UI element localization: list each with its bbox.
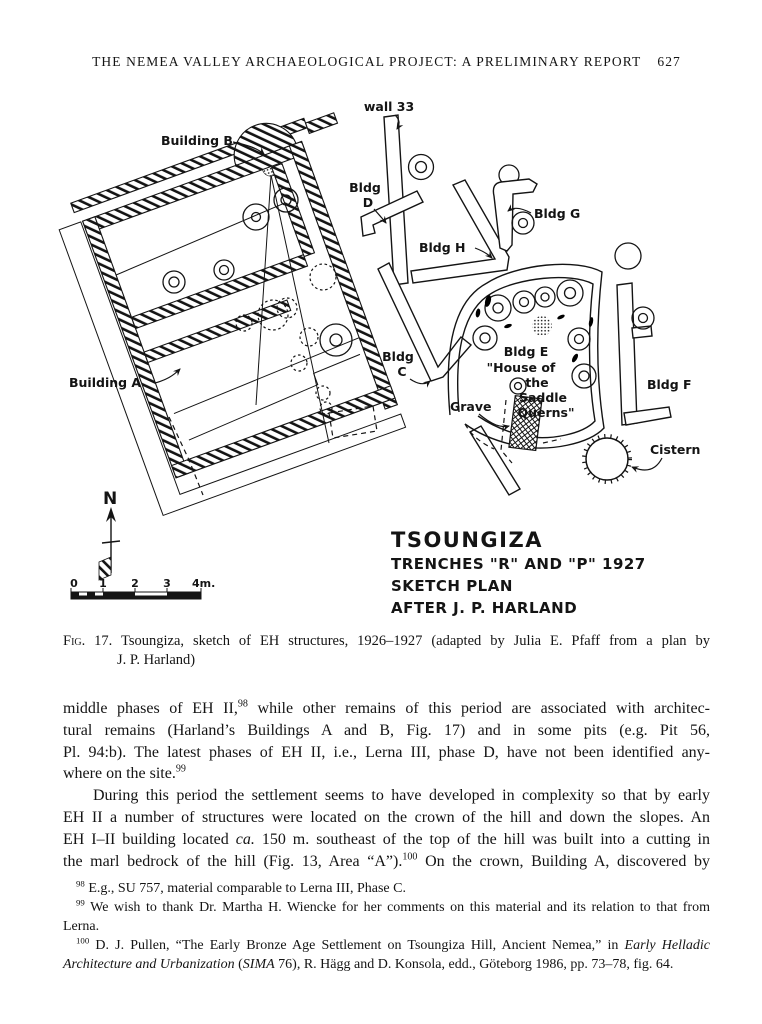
- label-bldg-d-2: D: [363, 195, 373, 210]
- label-bldg-f: Bldg F: [647, 377, 692, 392]
- running-head: THE NEMEA VALLEY ARCHAEOLOGICAL PROJECT:…: [63, 54, 710, 70]
- label-bldg-e-4: Saddle: [519, 390, 567, 405]
- footnote-99: 99 We wish to thank Dr. Martha H. Wienck…: [63, 898, 710, 936]
- paragraph-1: middle phases of EH II,98 while other re…: [63, 698, 710, 785]
- plan-title-line4: AFTER J. P. HARLAND: [391, 599, 577, 617]
- footnotes: 98 E.g., SU 757, material comparable to …: [63, 879, 710, 974]
- figure-caption: Fig. 17. Tsoungiza, sketch of EH structu…: [63, 632, 710, 670]
- body-text: middle phases of EH II,98 while other re…: [63, 698, 710, 872]
- plan-title-line1: TSOUNGIZA: [391, 528, 543, 552]
- pithos-circle: [409, 155, 434, 180]
- room-line: [181, 354, 367, 440]
- scale-bar: 0 1 2 3 4m.: [70, 577, 215, 599]
- label-bldg-e-5: Querns": [517, 405, 574, 420]
- stipple-pit: [532, 316, 552, 336]
- label-bldg-c-1: Bldg: [382, 349, 414, 364]
- label-cistern: Cistern: [650, 442, 700, 457]
- label-wall-33: wall 33: [364, 99, 414, 114]
- wall-spur: [306, 113, 338, 134]
- paragraph-2: During this period the settlement seems …: [63, 785, 710, 872]
- cistern: [584, 436, 630, 482]
- plan-title-block: TSOUNGIZA TRENCHES "R" AND "P" 1927 SKET…: [391, 528, 646, 617]
- plan-title-line2: TRENCHES "R" AND "P" 1927: [391, 555, 646, 573]
- north-arrow: N: [99, 489, 120, 580]
- figure-17-plan: Building B wall 33 Bldg D Bldg G Bldg H …: [51, 95, 711, 630]
- plan-title-line3: SKETCH PLAN: [391, 577, 513, 595]
- section-line: [256, 175, 271, 405]
- label-bldg-c-2: C: [397, 364, 406, 379]
- label-bldg-g: Bldg G: [534, 206, 580, 221]
- label-bldg-e-2: "House of: [487, 360, 556, 375]
- label-bldg-h: Bldg H: [419, 240, 466, 255]
- building-a-complex: [51, 99, 443, 516]
- pithos-circle: [512, 212, 534, 234]
- journal-page: THE NEMEA VALLEY ARCHAEOLOGICAL PROJECT:…: [0, 0, 762, 1024]
- label-bldg-d-1: Bldg: [349, 180, 381, 195]
- label-building-a: Building A: [69, 375, 141, 390]
- scale-4m: 4m.: [192, 577, 215, 590]
- footnote-100: 100 D. J. Pullen, “The Early Bronze Age …: [63, 936, 710, 974]
- label-grave: Grave: [450, 399, 492, 414]
- tsoungiza-sketch-plan: Building B wall 33 Bldg D Bldg G Bldg H …: [51, 95, 711, 630]
- interior-wall-1: [131, 255, 307, 329]
- footnote-98: 98 E.g., SU 757, material comparable to …: [63, 879, 710, 898]
- room-line: [171, 338, 362, 414]
- page-number: 627: [657, 54, 681, 70]
- label-bldg-e-3: the: [525, 375, 548, 390]
- label-building-b: Building B: [161, 133, 233, 148]
- running-head-title: THE NEMEA VALLEY ARCHAEOLOGICAL PROJECT:…: [92, 54, 641, 70]
- north-label: N: [103, 489, 117, 509]
- bldg-f: [615, 243, 671, 425]
- label-bldg-e-1: Bldg E: [504, 344, 549, 359]
